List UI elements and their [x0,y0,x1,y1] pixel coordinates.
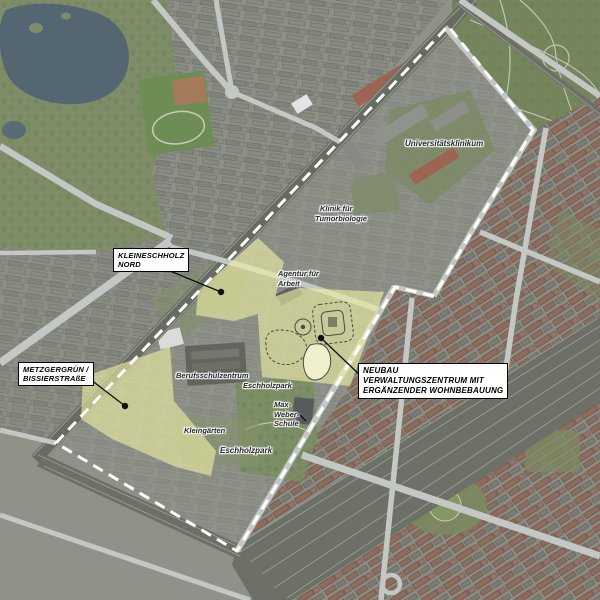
label-line: Kleingärten [184,426,225,436]
annotation-line: VERWALTUNGSZENTRUM MIT [363,376,503,386]
annotation-line: KLEINESCHHOLZ [118,251,184,260]
annotation-box-kleineschholz-nord: KLEINESCHHOLZ NORD [113,248,189,272]
pond [2,121,26,139]
annotation-line: NORD [118,260,184,269]
label-line: Schule [274,419,299,429]
label-line: Tumorbiologie [315,214,367,224]
leader-dot-neubau [318,335,324,341]
place-label-agentur-fuer-arbeit: Agentur für Arbeit [278,269,319,288]
label-line: Eschholzpark [220,446,272,456]
label-line: Agentur für [278,269,319,279]
place-label-eschholzpark-south: Eschholzpark [220,446,272,456]
label-line: Max- [274,400,299,410]
place-label-eschholzpark-north: Eschholzpark [243,381,292,391]
place-label-berufsschulzentrum: Berufsschulzentrum [176,371,249,381]
leader-dot-kleineschholz [218,289,224,295]
place-label-universitaetsklinikum: Universitätsklinikum [405,139,483,149]
annotation-line: BISSIERSTRAßE [23,374,89,383]
annotation-line: NEUBAU [363,366,503,376]
label-line: Weber- [274,410,299,420]
leader-dot-metzgergruen [122,403,128,409]
place-label-kleingaerten: Kleingärten [184,426,225,436]
annotation-box-neubau: NEUBAU VERWALTUNGSZENTRUM MIT ERGÄNZENDE… [358,363,508,399]
annotation-line: ERGÄNZENDER WOHNBEBAUUNG [363,386,503,396]
label-line: Universitätsklinikum [405,139,483,149]
aerial-imagery [0,0,600,600]
annotation-line: METZGERGRÜN / [23,365,89,374]
label-line: Arbeit [278,279,319,289]
label-line: Eschholzpark [243,381,292,391]
sports-fields [138,71,214,155]
place-label-klinik-tumorbiologie: Klinik für Tumorbiologie [320,204,367,223]
label-line: Berufsschulzentrum [176,371,249,381]
annotation-box-metzgergruen: METZGERGRÜN / BISSIERSTRAßE [18,362,94,386]
aerial-map: KLEINESCHHOLZ NORD METZGERGRÜN / BISSIER… [0,0,600,600]
place-label-max-weber-schule: Max- Weber- Schule [274,400,299,429]
label-line: Klinik für [320,204,367,214]
